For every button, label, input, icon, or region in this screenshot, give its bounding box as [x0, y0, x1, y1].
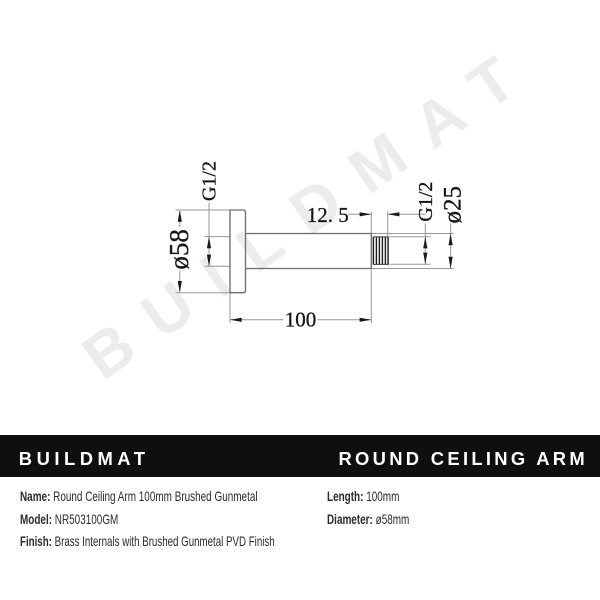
svg-text:G1/2: G1/2 [199, 161, 221, 201]
svg-text:ø58: ø58 [164, 229, 194, 270]
svg-text:12. 5: 12. 5 [307, 203, 349, 227]
svg-text:ø25: ø25 [440, 186, 467, 224]
svg-text:100: 100 [285, 307, 317, 331]
svg-text:G1/2: G1/2 [415, 182, 437, 222]
